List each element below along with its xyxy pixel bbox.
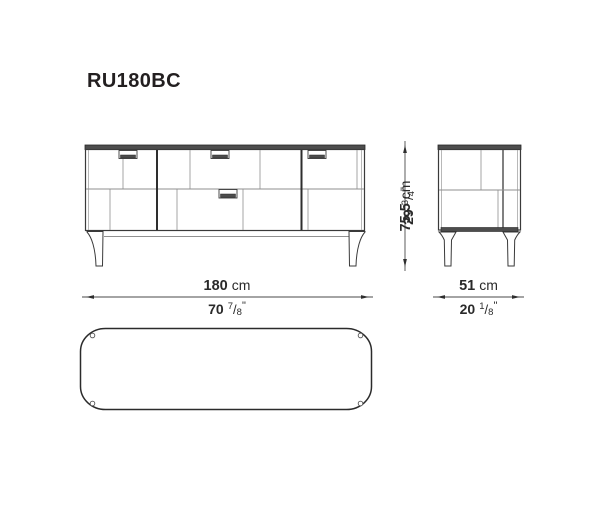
drawer-handle-upper-right [308, 151, 326, 159]
front-left-leg [87, 232, 103, 267]
width-metric-label: 180 cm [82, 277, 372, 294]
side-bottom-shadow [441, 228, 518, 232]
top-outline [81, 329, 372, 410]
furniture-drawing [0, 0, 602, 507]
side-right-leg [503, 232, 520, 266]
leg-mark-top-left [90, 333, 95, 338]
top-view [81, 329, 372, 410]
front-view [85, 145, 365, 266]
width-metric-unit: cm [232, 277, 251, 293]
leg-mark-bottom-left [90, 401, 95, 406]
depth-metric-value: 51 [459, 278, 475, 294]
drawer-handle-lower-center [219, 190, 237, 199]
depth-metric-label: 51 cm [433, 277, 524, 294]
technical-drawing-page: RU180BC [0, 0, 602, 507]
width-dimension-line [82, 295, 373, 299]
height-imperial-label: 29 3/4" [398, 187, 419, 225]
front-top-panel [85, 145, 365, 150]
drawer-handle-upper-center [211, 151, 229, 159]
width-imperial-label: 70 7/8" [82, 300, 372, 318]
side-view [438, 145, 521, 266]
leg-mark-bottom-right [358, 401, 363, 406]
side-left-leg [439, 232, 456, 266]
depth-imperial-label: 20 1/8" [433, 300, 524, 318]
leg-mark-top-right [358, 333, 363, 338]
drawer-handle-upper-left [119, 151, 137, 159]
depth-metric-unit: cm [479, 277, 498, 293]
width-metric-value: 180 [204, 278, 228, 294]
front-right-leg [349, 232, 365, 267]
side-top-panel [438, 145, 521, 150]
depth-dimension-line [433, 295, 524, 299]
